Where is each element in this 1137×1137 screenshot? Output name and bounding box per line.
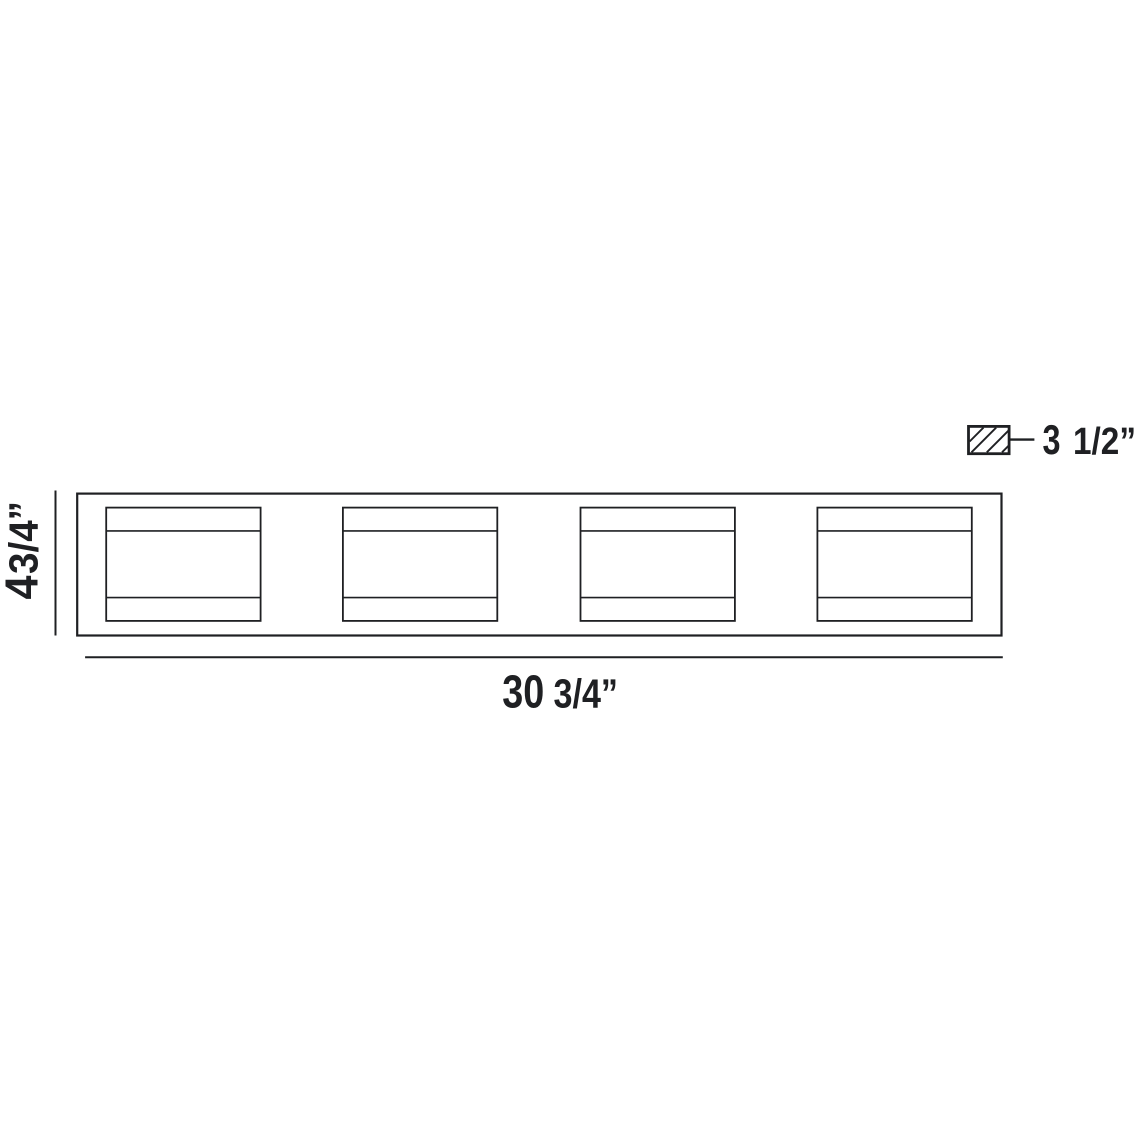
svg-text:30: 30 [502,666,544,718]
svg-text:3/4”: 3/4” [554,671,619,717]
svg-text:4: 4 [0,575,48,599]
svg-text:1/2”: 1/2” [1073,421,1136,463]
svg-text:3/4”: 3/4” [1,501,47,574]
svg-text:3: 3 [1043,416,1061,463]
